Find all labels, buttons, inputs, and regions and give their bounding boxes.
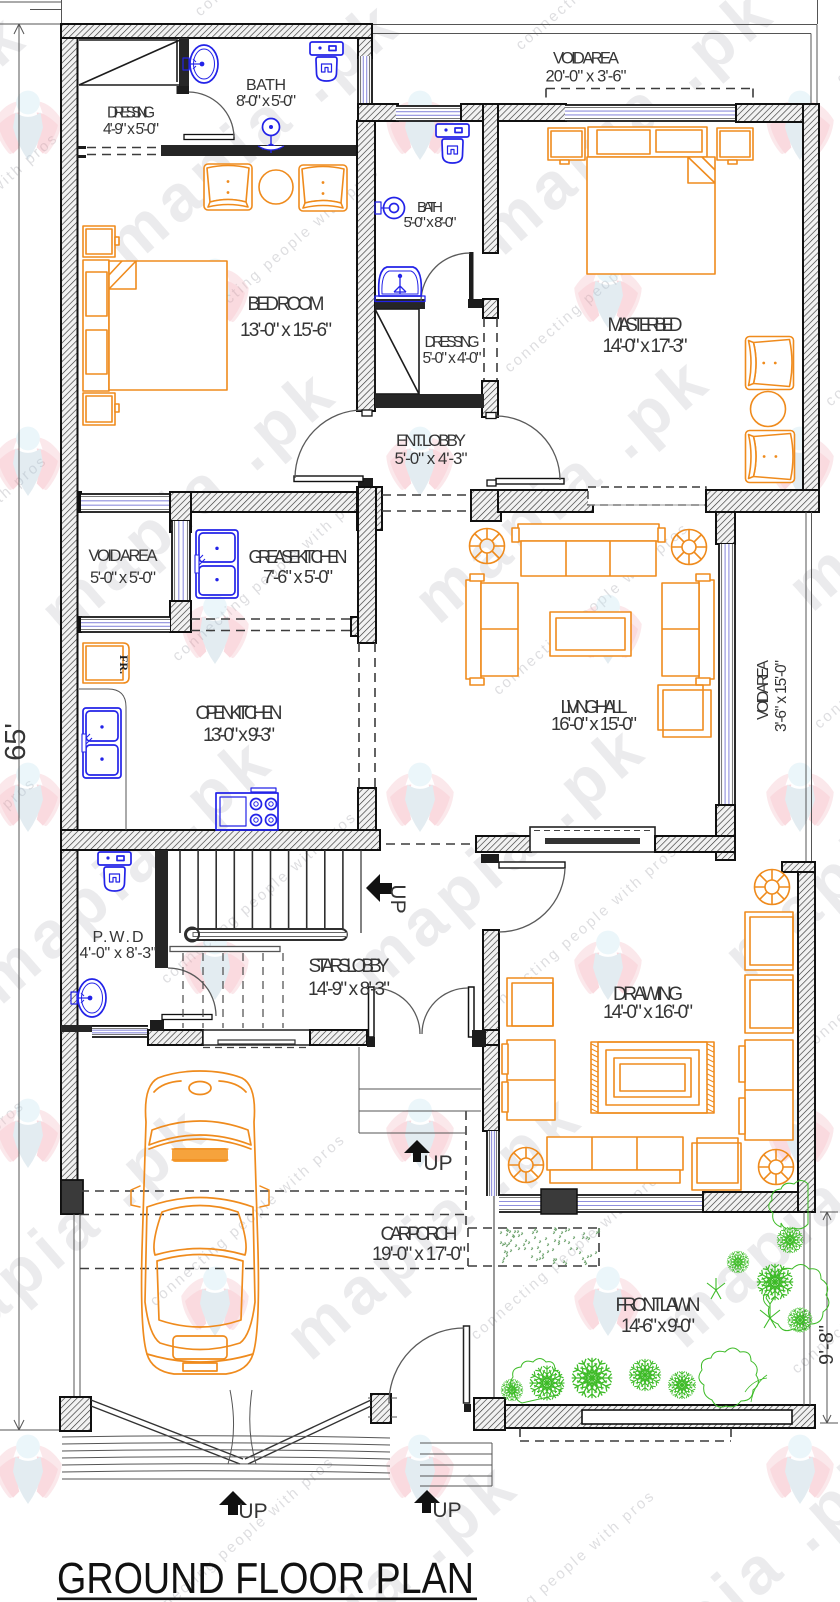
svg-text:13'-0" x 15'-6": 13'-0" x 15'-6" <box>240 320 332 341</box>
svg-text:16'-0" x 15'-0": 16'-0" x 15'-0" <box>551 713 637 734</box>
svg-text:UP: UP <box>386 884 409 913</box>
svg-text:OPEN KITCHEN: OPEN KITCHEN <box>196 703 283 724</box>
svg-text:DRESSING: DRESSING <box>425 334 480 351</box>
svg-text:UP: UP <box>432 1499 461 1522</box>
svg-text:BED ROOM: BED ROOM <box>248 294 325 315</box>
svg-text:14'-6" x 9'-0": 14'-6" x 9'-0" <box>621 1316 695 1337</box>
svg-text:FR.: FR. <box>117 655 131 674</box>
svg-text:7'-6" x 5'-0": 7'-6" x 5'-0" <box>263 567 333 587</box>
svg-text:5'-0" x 5'-0": 5'-0" x 5'-0" <box>90 569 156 587</box>
svg-text:P.W.D: P.W.D <box>93 929 144 946</box>
svg-text:UP: UP <box>423 1152 452 1175</box>
svg-text:5'-0" x 4'-3": 5'-0" x 4'-3" <box>395 449 468 468</box>
svg-text:19'-0" x 17'-0": 19'-0" x 17'-0" <box>372 1244 466 1265</box>
svg-text:4'-9" x 5'-0": 4'-9" x 5'-0" <box>103 121 159 138</box>
svg-text:8'-0" x 5'-0": 8'-0" x 5'-0" <box>236 93 296 110</box>
svg-text:VOID AREA: VOID AREA <box>89 547 158 565</box>
svg-text:BATH: BATH <box>246 77 286 94</box>
svg-text:3'-6" x 15'-0": 3'-6" x 15'-0" <box>773 660 790 732</box>
svg-text:14'-0" x 16'-0": 14'-0" x 16'-0" <box>603 1002 693 1023</box>
svg-text:CAR PORCH: CAR PORCH <box>381 1224 458 1245</box>
svg-text:STAIRS LOBBY: STAIRS LOBBY <box>309 956 390 977</box>
svg-text:4'-0" x 8'-3": 4'-0" x 8'-3" <box>80 945 157 962</box>
svg-text:14'-9" x 8'-3": 14'-9" x 8'-3" <box>308 979 390 1000</box>
svg-text:5'-0" x 4'-0": 5'-0" x 4'-0" <box>423 350 482 367</box>
svg-text:GROUND FLOOR PLAN: GROUND FLOOR PLAN <box>57 1554 474 1602</box>
svg-text:14'-0" x 17'-3": 14'-0" x 17'-3" <box>603 336 688 357</box>
svg-text:5'-0" x 8'-0": 5'-0" x 8'-0" <box>404 214 457 231</box>
svg-text:13'-0" x 9'-3": 13'-0" x 9'-3" <box>203 725 275 746</box>
svg-text:20'-0" x 3'-6": 20'-0" x 3'-6" <box>546 68 627 86</box>
svg-text:9'-8": 9'-8" <box>816 1325 838 1365</box>
svg-text:GREASE KITCHEN: GREASE KITCHEN <box>249 547 348 567</box>
svg-text:MASTER BED: MASTER BED <box>608 315 683 336</box>
svg-text:65': 65' <box>0 723 32 761</box>
svg-text:ENT. LOBBY: ENT. LOBBY <box>396 431 466 450</box>
svg-text:VOID AREA: VOID AREA <box>553 50 619 68</box>
svg-text:VOID AREA: VOID AREA <box>755 659 772 720</box>
svg-text:FRONT LAWN: FRONT LAWN <box>616 1295 701 1316</box>
svg-text:DRESSING: DRESSING <box>107 105 155 122</box>
svg-text:UP: UP <box>238 1500 267 1523</box>
